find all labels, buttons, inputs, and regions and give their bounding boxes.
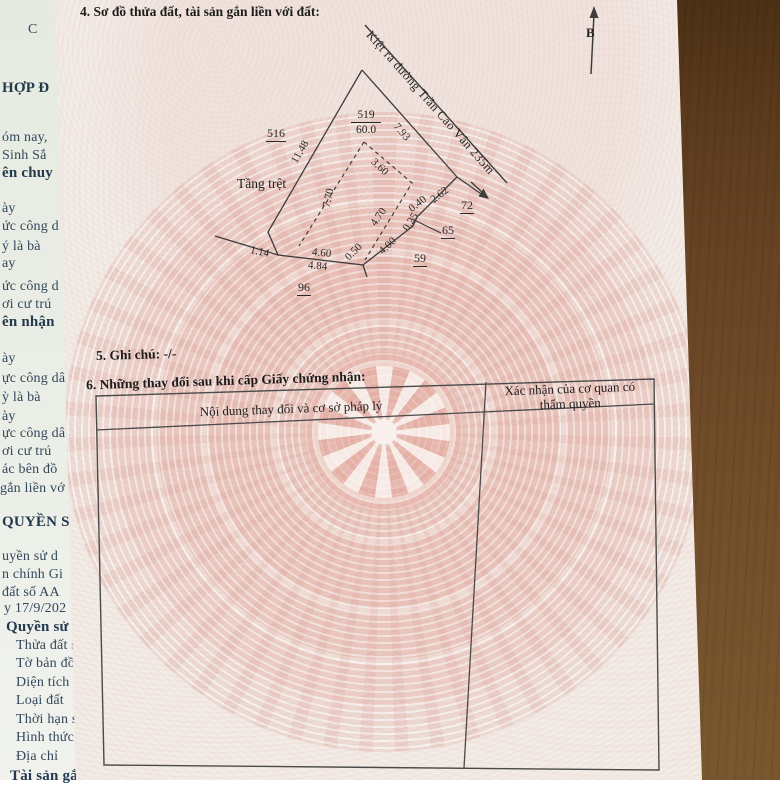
contract-text-fragment: Diện tích (16, 675, 70, 691)
dimension-label: 4.84 (308, 259, 328, 273)
photo-scene: C HỢP Đ óm nay, Sinh Sắ ên chuy ày ức cô… (0, 0, 780, 780)
contract-text-fragment: HỢP Đ (2, 80, 49, 97)
contract-text-fragment: ày (2, 351, 16, 367)
contract-text-fragment: y 17/9/202 (4, 601, 66, 617)
contract-text-fragment: ên chuy (2, 165, 53, 182)
adjacent-parcel-number: 72 (460, 199, 474, 214)
contract-text-fragment: đất số AA (2, 585, 60, 601)
contract-text-fragment: gắn liền vớ (0, 481, 65, 497)
certificate-page: 4. Sơ đồ thửa đất, tài sản gắn liền với … (0, 0, 780, 780)
contract-text-fragment: ơi cư trú (2, 297, 51, 313)
contract-text-fragment: Tài sản gắ (10, 768, 78, 785)
contract-text-fragment: ức công d (2, 279, 59, 295)
contract-text-fragment: ày (2, 201, 16, 217)
contract-text-fragment: Loại đất (16, 693, 64, 709)
parcel-area: 60.0 (351, 123, 381, 136)
adjacent-parcel-number: 96 (297, 281, 311, 296)
contract-text-fragment: Hình thức (16, 730, 74, 746)
contract-text-fragment: n chính Gi (2, 567, 63, 583)
contract-text-fragment: Sinh Sắ (2, 148, 47, 164)
section5-note: 5. Ghi chú: -/- (96, 346, 177, 364)
contract-text-fragment: ay (2, 256, 16, 272)
adjacent-parcel-number: 65 (441, 224, 455, 239)
north-label: B (586, 25, 595, 41)
adjacent-parcel-number: 516 (266, 127, 286, 142)
contract-text-fragment: ên nhận (2, 314, 55, 331)
contract-text-fragment: ơi cư trú (2, 444, 51, 460)
adjacent-parcel-number: 59 (413, 252, 427, 267)
contract-text-fragment: Địa chỉ (16, 749, 58, 765)
contract-text-fragment: ý là bà (2, 239, 41, 255)
contract-text-fragment: uyền sử d (2, 549, 58, 565)
dimension-label: 4.60 (312, 246, 332, 260)
contract-text-fragment: Thời hạn s (16, 712, 78, 728)
contract-text-fragment: QUYỀN S (2, 514, 70, 531)
table-col2-header: Xác nhận của cơ quan có thẩm quyền (494, 378, 647, 414)
contract-text-fragment: ác bên đồ (2, 462, 57, 478)
contract-text-fragment: ực công dâ (2, 426, 65, 442)
contract-text-fragment: Tờ bản đồ (16, 656, 75, 672)
contract-text-fragment: Quyền sử (6, 619, 69, 636)
contract-text-fragment: óm nay, (2, 130, 48, 146)
contract-text-fragment: ày (2, 409, 16, 425)
parcel-number: 519 (351, 109, 381, 123)
parcel-number-area: 519 60.0 (351, 109, 381, 136)
contract-text-fragment: ỳ là bà (2, 390, 41, 406)
contract-text-fragment: ức công d (2, 219, 59, 235)
ground-floor-label: Tầng trệt (237, 176, 286, 192)
contract-text-fragment: Thửa đất s (16, 638, 77, 654)
contract-text-fragment: ực công dâ (2, 371, 65, 387)
contract-text-fragment: C (28, 22, 38, 38)
